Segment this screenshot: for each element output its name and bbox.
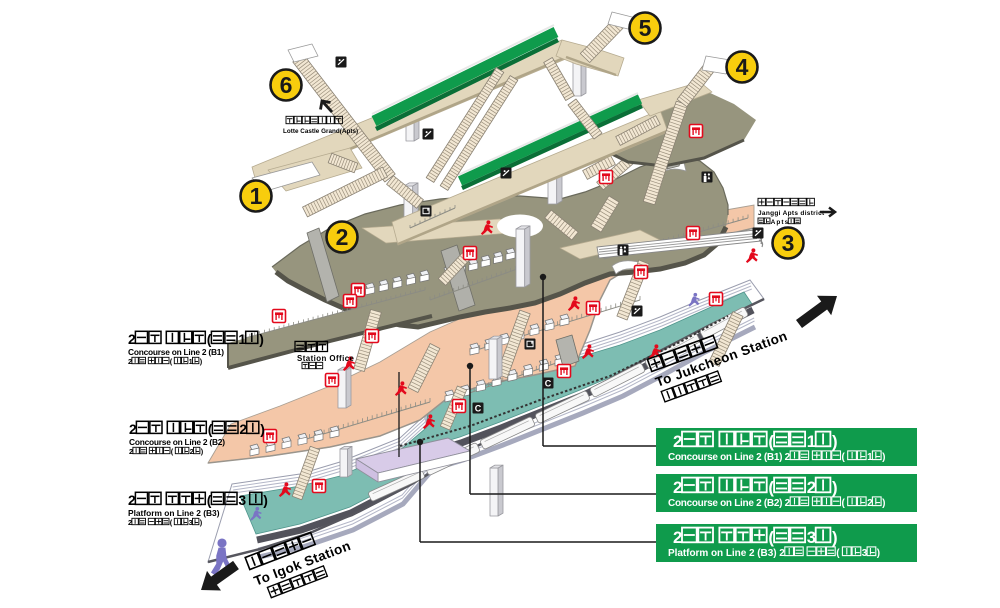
- svg-text:): ): [832, 528, 838, 547]
- svg-text:): ): [882, 498, 885, 509]
- svg-text:): ): [877, 548, 880, 559]
- svg-text:2: 2: [807, 478, 816, 497]
- svg-text:2: 2: [673, 432, 682, 451]
- svg-text:): ): [259, 331, 264, 347]
- svg-text:1: 1: [807, 432, 816, 451]
- svg-text:Concourse on Line 2 (B1): Concourse on Line 2 (B1): [128, 347, 224, 357]
- svg-text:Concourse on Line 2 (B2): Concourse on Line 2 (B2): [129, 437, 225, 447]
- svg-text:Lotte Castle Grand(Apts): Lotte Castle Grand(Apts): [283, 128, 358, 135]
- svg-text:2: 2: [336, 224, 349, 250]
- svg-text:C: C: [545, 379, 552, 389]
- svg-text:3: 3: [782, 230, 795, 256]
- svg-text:2: 2: [673, 478, 682, 497]
- svg-text:2: 2: [673, 528, 682, 547]
- svg-text:): ): [882, 452, 885, 463]
- svg-text:Station Office: Station Office: [297, 354, 355, 363]
- svg-text:Concourse on Line 2 (B1) 2: Concourse on Line 2 (B1) 2: [668, 452, 791, 463]
- svg-text:Concourse on Line 2 (B2) 2: Concourse on Line 2 (B2) 2: [668, 498, 791, 509]
- svg-text:Platform on Line 2 (B3) 2: Platform on Line 2 (B3) 2: [668, 548, 785, 559]
- svg-text:): ): [263, 492, 268, 508]
- svg-text:): ): [200, 357, 203, 366]
- svg-text:): ): [832, 432, 838, 451]
- svg-text:Janggi Apts district: Janggi Apts district: [758, 210, 825, 217]
- svg-text:Apts: Apts: [771, 219, 789, 226]
- svg-text:Platform on Line 2 (B3): Platform on Line 2 (B3): [128, 508, 220, 518]
- svg-text:1: 1: [250, 183, 263, 209]
- svg-text:6: 6: [280, 72, 293, 98]
- svg-text:5: 5: [639, 15, 652, 41]
- svg-text:(: (: [170, 518, 173, 527]
- svg-text:(: (: [171, 447, 174, 456]
- svg-text:): ): [832, 478, 838, 497]
- svg-text:C: C: [475, 404, 482, 414]
- svg-text:4: 4: [736, 54, 749, 80]
- svg-text:): ): [260, 421, 265, 437]
- svg-text:): ): [200, 518, 203, 527]
- svg-text:(: (: [170, 357, 173, 366]
- svg-text:3: 3: [238, 492, 246, 508]
- svg-text:3: 3: [807, 528, 816, 547]
- svg-text:): ): [201, 447, 204, 456]
